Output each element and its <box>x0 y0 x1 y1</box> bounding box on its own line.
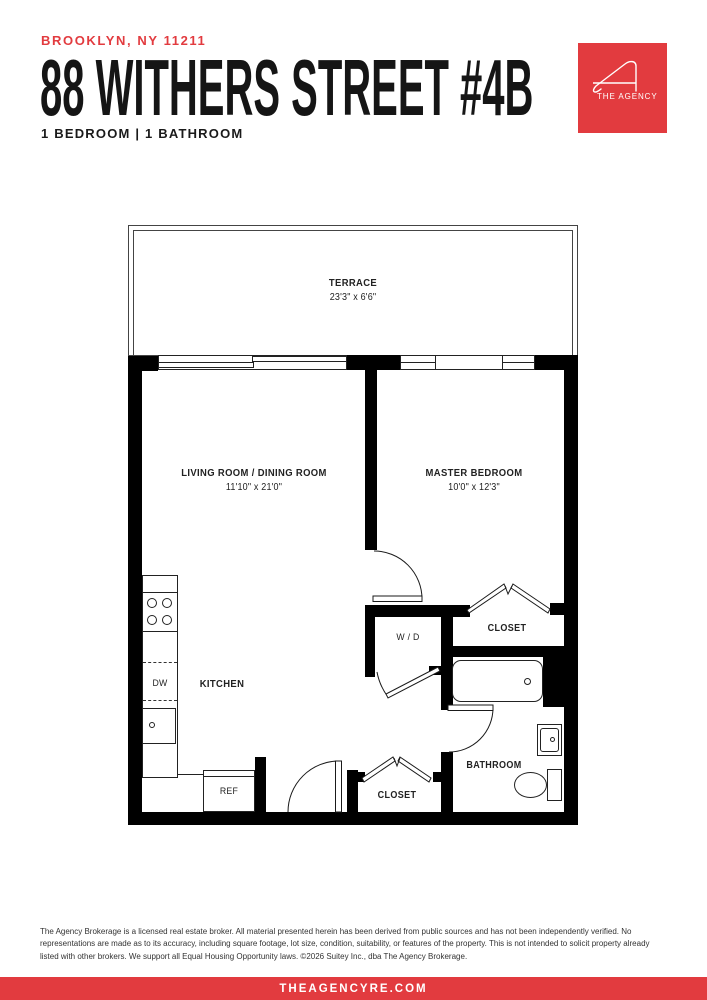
bedroom-window-mullion-1 <box>435 355 436 370</box>
stove <box>142 592 178 632</box>
entry-closet-bifold-right <box>398 757 431 782</box>
bedroom-window-sash-right <box>502 362 535 363</box>
wall-entry-bifold-stub-right <box>433 772 441 782</box>
toilet-tank <box>547 769 562 801</box>
bathroom-door-leaf <box>448 705 493 711</box>
kitchen-label: KITCHEN <box>200 678 245 690</box>
refrigerator-label: REF <box>220 786 238 797</box>
wall-wd-door-stub <box>429 666 443 675</box>
wd-door-arc <box>377 672 388 697</box>
dishwasher-label: DW <box>152 678 167 689</box>
bedroom-closet-label: CLOSET <box>488 623 527 634</box>
wall-bathroom-left-lower <box>441 752 453 812</box>
stove-burner <box>147 598 157 608</box>
living-room-dims: 11'10" x 21'0" <box>226 482 282 493</box>
entry-closet-label: CLOSET <box>378 790 417 801</box>
wall-top-mid <box>347 355 400 370</box>
wall-wd-top <box>365 605 470 617</box>
washer-dryer-label: W / D <box>396 632 419 643</box>
bedroom-closet-bifold-left <box>467 584 506 613</box>
wall-left <box>128 356 142 825</box>
stove-burner <box>147 615 157 625</box>
kitchen-sink-faucet <box>149 722 155 728</box>
terrace-dims: 23'3" x 6'6" <box>330 292 377 303</box>
living-room-label: LIVING ROOM / DINING ROOM <box>181 467 327 479</box>
wall-living-bedroom-divider <box>365 369 377 550</box>
dishwasher-outline-top <box>143 662 177 663</box>
entry-closet-bifold-notch <box>394 758 400 766</box>
wall-top-right <box>535 355 578 370</box>
living-sliding-door-pane-left <box>158 362 254 368</box>
wall-wd-left <box>365 605 375 677</box>
bathroom-sink-drain <box>550 737 555 742</box>
master-bedroom-dims: 10'0" x 12'3" <box>448 482 500 493</box>
wall-closet-bifold-stub-right <box>550 603 564 615</box>
entry-door-leaf <box>336 761 342 812</box>
bedroom-door-arc <box>374 551 422 599</box>
doors-overlay <box>0 0 707 1000</box>
counter-ref-connector <box>178 774 203 775</box>
wall-closet-bottom <box>441 646 578 657</box>
wall-entry-bifold-stub-left <box>358 772 365 782</box>
refrigerator-inner-line <box>204 776 254 777</box>
wall-tub-right-block <box>543 657 578 707</box>
stove-burner <box>162 615 172 625</box>
floorplan: TERRACE 23'3" x 6'6" LIVING ROOM / DININ… <box>0 0 707 1000</box>
wall-entry-closet-left <box>347 770 358 812</box>
legal-disclaimer: The Agency Brokerage is a licensed real … <box>40 926 670 963</box>
stove-burner <box>162 598 172 608</box>
wall-right <box>564 355 578 825</box>
footer-bar: THEAGENCYRE.COM <box>0 977 707 1000</box>
footer-website: THEAGENCYRE.COM <box>279 983 427 995</box>
bedroom-closet-bifold-right <box>511 584 550 613</box>
bathtub-drain <box>524 678 531 685</box>
bedroom-closet-bifold-notch <box>505 586 512 594</box>
wall-top-left <box>128 356 158 371</box>
entry-door-arc <box>288 761 339 812</box>
bedroom-window-sash-left <box>400 362 435 363</box>
kitchen-sink <box>142 708 176 744</box>
wall-ref-stub <box>255 757 266 812</box>
entry-closet-bifold-left <box>362 757 395 782</box>
master-bedroom-label: MASTER BEDROOM <box>426 467 523 479</box>
dishwasher-outline-bottom <box>143 700 177 701</box>
toilet-bowl <box>514 772 547 798</box>
terrace-label: TERRACE <box>329 277 377 289</box>
bathroom-label: BATHROOM <box>466 760 521 771</box>
bedroom-door-leaf <box>373 596 422 602</box>
bathroom-door-arc <box>449 708 493 752</box>
wall-bottom <box>128 812 578 825</box>
living-sliding-door-pane-right <box>252 356 347 362</box>
